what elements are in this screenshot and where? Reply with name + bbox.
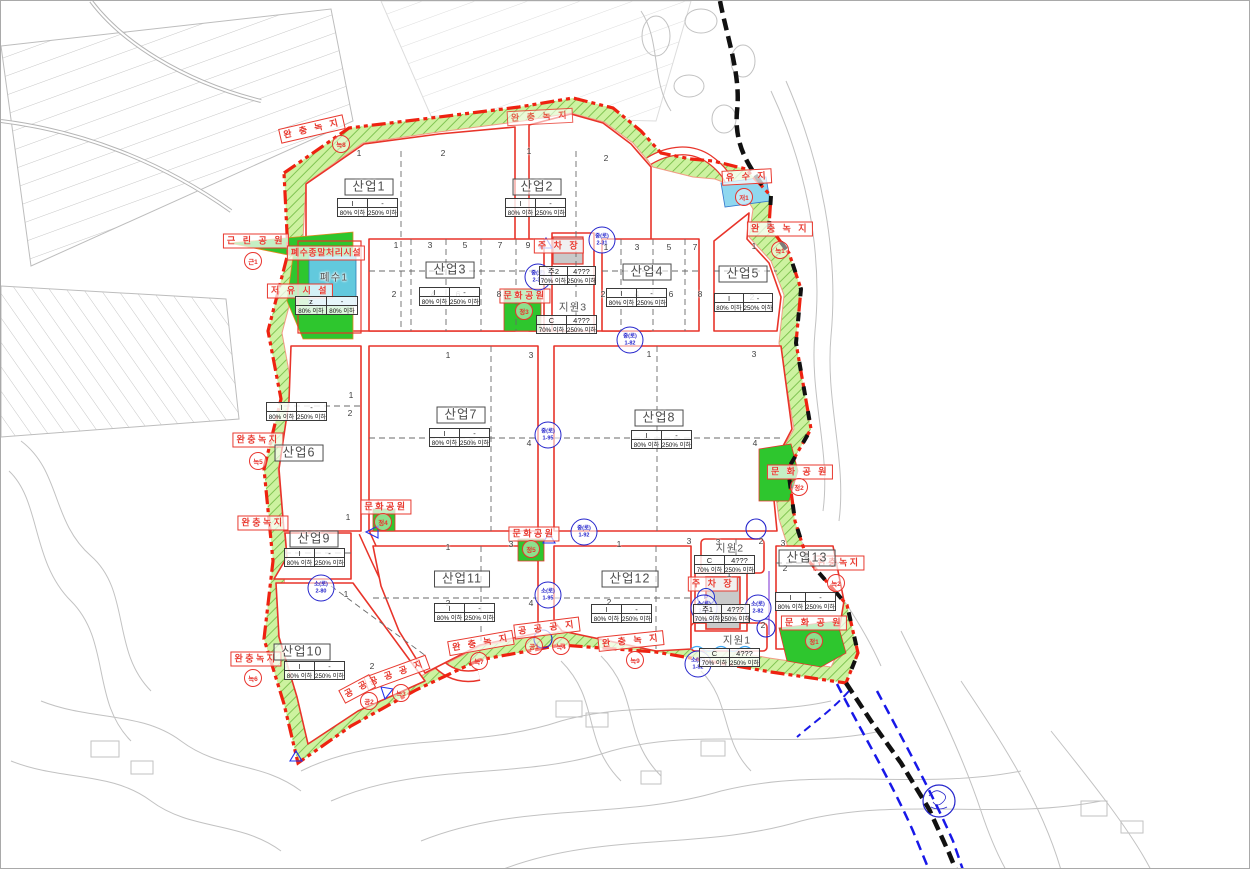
zone-label-munhwa-park-c: 문화공원 xyxy=(508,527,559,542)
lot-table-row: 70% 이하250% 이하 xyxy=(537,325,599,334)
zone-label-munhwa-park-b: 문화공원 xyxy=(360,500,411,515)
parcel-number-32: 4 xyxy=(753,438,758,448)
lot-table-cell: 70% 이하 xyxy=(699,657,730,667)
lot-table-cell: 250% 이하 xyxy=(449,296,480,306)
lot-table-row: 70% 이하250% 이하 xyxy=(694,614,752,623)
circle-marker-저1-3: 저1 xyxy=(735,188,753,206)
lot-table-sanup13: I-80% 이하250% 이하 xyxy=(776,593,838,611)
lot-table-cell: 70% 이하 xyxy=(694,564,725,574)
parcel-number-43: 3 xyxy=(781,538,786,548)
parcel-number-24: 2 xyxy=(348,408,353,418)
road-bubble-4: 소(로)1-95 xyxy=(535,582,562,609)
lot-name-sanup11: 산업11 xyxy=(434,571,490,588)
lot-table-sanup4: I-80% 이하250% 이하 xyxy=(607,289,669,307)
lot-table-cell: 250% 이하 xyxy=(459,437,490,447)
lot-table-sanup5: I-80% 이하250% 이하 xyxy=(715,294,775,312)
lot-table-sanup7: I-80% 이하250% 이하 xyxy=(430,429,492,447)
lot-table-row: 80% 이하250% 이하 xyxy=(506,208,568,217)
lot-table-cell: 250% 이하 xyxy=(721,613,750,623)
zone-label-munhwa-park-e: 문 화 공 원 xyxy=(781,616,847,631)
lot-table-cell: 80% 이하 xyxy=(631,439,662,449)
lot-table-cell: 80% 이하 xyxy=(266,411,297,421)
lot-name-jiwon1: 지원1 xyxy=(723,633,751,648)
lot-name-sanup5: 산업5 xyxy=(719,266,768,283)
lot-table-row: 80% 이하250% 이하 xyxy=(338,208,400,217)
zoning-map-canvas: 완 충 녹 지완 충 녹 지완 충 녹 지완충녹지완충녹지완충녹지완 충 녹 지… xyxy=(0,0,1250,869)
lot-table-row: 70% 이하250% 이하 xyxy=(540,276,598,285)
lot-table-row: 70% 이하250% 이하 xyxy=(695,565,757,574)
parcel-number-28: 4 xyxy=(527,438,532,448)
parcel-number-33: 1 xyxy=(346,512,351,522)
parcel-number-21: 1 xyxy=(752,241,757,251)
parcel-number-30: 3 xyxy=(752,349,757,359)
lot-table-row: 80% 이하250% 이하 xyxy=(435,613,497,622)
lot-table-cell: 250% 이하 xyxy=(805,601,836,611)
map-label-overlay: 완 충 녹 지완 충 녹 지완 충 녹 지완충녹지완충녹지완충녹지완 충 녹 지… xyxy=(1,1,1249,868)
parcel-number-14: 3 xyxy=(635,242,640,252)
road-class: 소(로) xyxy=(314,581,328,588)
lot-table-cell: 80% 이하 xyxy=(434,612,465,622)
lot-table-row: 80% 이하250% 이하 xyxy=(285,671,347,680)
parcel-number-25: 1 xyxy=(446,350,451,360)
parcel-number-2: 1 xyxy=(527,146,532,156)
zone-label-pyesu-facility: 폐수종말처리시설 xyxy=(287,246,365,261)
lot-table-sanup3: I-80% 이하250% 이하 xyxy=(420,288,482,306)
zone-label-geunrin-park: 근 린 공 원 xyxy=(223,234,289,249)
parcel-number-48: 2 xyxy=(761,620,766,630)
lot-table-jiwon2: C4???70% 이하250% 이하 xyxy=(695,556,757,574)
lot-table-ju1: 주14???70% 이하250% 이하 xyxy=(694,605,752,623)
parcel-number-34: 1 xyxy=(344,589,349,599)
circle-marker-정5-8: 정5 xyxy=(522,540,540,558)
road-number: 1-92 xyxy=(578,532,589,539)
parcel-number-46: 2 xyxy=(759,536,764,546)
lot-table-cell: 250% 이하 xyxy=(729,657,760,667)
lot-table-jiwon1: C4???70% 이하250% 이하 xyxy=(700,649,762,667)
lot-name-jiwon2: 지원2 xyxy=(716,541,744,556)
lot-table-row: 80% 이하250% 이하 xyxy=(607,298,669,307)
parcel-number-16: 7 xyxy=(693,242,698,252)
circle-marker-정1-10: 정1 xyxy=(805,632,823,650)
lot-name-pyesu1: 폐수1 xyxy=(320,270,348,285)
lot-table-sanup11: I-80% 이하250% 이하 xyxy=(435,604,497,622)
lot-table-cell: 250% 이하 xyxy=(464,612,495,622)
road-class: 중(로) xyxy=(577,525,591,532)
lot-table-sanup8: I-80% 이하250% 이하 xyxy=(632,431,694,449)
lot-table-cell: 250% 이하 xyxy=(743,302,773,312)
lot-name-jiwon3: 지원3 xyxy=(559,300,587,315)
lot-table-cell: 250% 이하 xyxy=(535,207,566,217)
lot-table-cell: 70% 이하 xyxy=(539,275,568,285)
lot-name-sanup8: 산업8 xyxy=(635,410,684,427)
zone-label-parking-a: 주 차 장 xyxy=(534,239,584,254)
lot-table-cell: 80% 이하 xyxy=(419,296,450,306)
parcel-number-40: 1 xyxy=(617,539,622,549)
parcel-number-1: 2 xyxy=(441,148,446,158)
lot-table-cell: 80% 이하 xyxy=(429,437,460,447)
road-bubble-0: 중(로)2-31 xyxy=(589,227,616,254)
lot-table-cell: 250% 이하 xyxy=(566,324,597,334)
circle-marker-녹5-5: 녹5 xyxy=(249,452,267,470)
circle-marker-녹3-13: 녹3 xyxy=(392,684,410,702)
lot-name-sanup1: 산업1 xyxy=(345,179,394,196)
parcel-number-35: 2 xyxy=(370,661,375,671)
lot-table-cell: 80% 이하 xyxy=(775,601,806,611)
lot-table-cell: 250% 이하 xyxy=(296,411,327,421)
lot-table-cell: 250% 이하 xyxy=(314,557,345,567)
parcel-number-8: 9 xyxy=(526,240,531,250)
road-class: 중(로) xyxy=(623,333,637,340)
zone-label-wanchung-2: 완 충 녹 지 xyxy=(507,108,574,126)
lot-table-cell: 250% 이하 xyxy=(314,670,345,680)
road-number: 2-80 xyxy=(315,588,326,595)
lot-table-cell: 250% 이하 xyxy=(567,275,596,285)
circle-marker-녹7-14: 녹7 xyxy=(470,652,488,670)
lot-name-sanup9: 산업9 xyxy=(290,531,339,548)
parcel-number-29: 1 xyxy=(647,349,652,359)
parcel-number-15: 5 xyxy=(667,242,672,252)
parcel-number-20: 8 xyxy=(698,289,703,299)
lot-table-sanup1: I-80% 이하250% 이하 xyxy=(338,199,400,217)
circle-marker-녹1-1: 녹1 xyxy=(771,241,789,259)
lot-table-row: 80% 이하250% 이하 xyxy=(715,303,775,312)
road-bubble-2: 중(로)1-95 xyxy=(535,422,562,449)
lot-name-sanup2: 산업2 xyxy=(513,179,562,196)
lot-table-sanup9: I-80% 이하250% 이하 xyxy=(285,549,347,567)
lot-table-cell: 80% 이하 xyxy=(337,207,368,217)
parcel-number-13: 1 xyxy=(604,242,609,252)
lot-name-sanup7: 산업7 xyxy=(437,407,486,424)
parcel-number-36: 1 xyxy=(446,542,451,552)
parcel-number-3: 2 xyxy=(604,153,609,163)
zone-label-wanchung-5: 완충녹지 xyxy=(237,516,288,531)
parcel-number-12: 8 xyxy=(497,289,502,299)
lot-table-row: 80% 이하250% 이하 xyxy=(285,558,347,567)
parcel-number-39: 4 xyxy=(529,598,534,608)
parcel-number-37: 3 xyxy=(509,539,514,549)
parcel-number-4: 1 xyxy=(394,240,399,250)
lot-table-row: 70% 이하250% 이하 xyxy=(700,658,762,667)
lot-table-row: 80% 이하250% 이하 xyxy=(420,297,482,306)
lot-table-cell: 80% 이하 xyxy=(714,302,744,312)
lot-table-row: 80% 이하80% 이하 xyxy=(296,306,360,315)
circle-marker-녹2-9: 녹2 xyxy=(827,574,845,592)
lot-table-ju2: 주24???70% 이하250% 이하 xyxy=(540,267,598,285)
lot-table-sanup6: I-80% 이하250% 이하 xyxy=(267,403,329,421)
lot-table-row: 80% 이하250% 이하 xyxy=(430,438,492,447)
lot-name-sanup12: 산업12 xyxy=(602,571,659,588)
circle-marker-녹9-17: 녹9 xyxy=(626,651,644,669)
lot-name-sanup4: 산업4 xyxy=(623,264,672,281)
road-bubble-3: 중(로)1-92 xyxy=(571,519,598,546)
parcel-number-19: 6 xyxy=(669,289,674,299)
road-number: 1-95 xyxy=(542,595,553,602)
zone-label-yusuji: 유 수 지 xyxy=(721,168,772,186)
circle-marker-근1-2: 근1 xyxy=(244,252,262,270)
lot-name-sanup13: 산업13 xyxy=(779,550,836,567)
road-class: 중(로) xyxy=(595,233,609,240)
lot-table-cell: 80% 이하 xyxy=(284,670,315,680)
parcel-number-5: 3 xyxy=(428,240,433,250)
zone-label-wanchung-8: 완 충 녹 지 xyxy=(597,630,664,652)
zone-label-wanchung-3: 완 충 녹 지 xyxy=(747,222,813,237)
circle-marker-녹8-0: 녹8 xyxy=(332,135,350,153)
lot-table-cell: 80% 이하 xyxy=(591,613,622,623)
parcel-number-6: 5 xyxy=(463,240,468,250)
lot-table-cell: 70% 이하 xyxy=(693,613,722,623)
lot-table-row: 80% 이하250% 이하 xyxy=(776,602,838,611)
circle-marker-정2-7: 정2 xyxy=(790,478,808,496)
parcel-number-23: 1 xyxy=(349,390,354,400)
lot-table-cell: 250% 이하 xyxy=(621,613,652,623)
lot-table-sanup12: I-80% 이하250% 이하 xyxy=(592,605,654,623)
road-number: 2-82 xyxy=(752,608,763,615)
circle-marker-녹6-11: 녹6 xyxy=(244,669,262,687)
lot-name-sanup10: 산업10 xyxy=(274,644,331,661)
road-number: 1-95 xyxy=(542,435,553,442)
lot-table-cell: 80% 이하 xyxy=(284,557,315,567)
lot-table-row: 80% 이하250% 이하 xyxy=(632,440,694,449)
lot-table-cell: 80% 이하 xyxy=(606,297,637,307)
road-class: 소(로) xyxy=(751,601,765,608)
lot-table-cell: 250% 이하 xyxy=(724,564,755,574)
lot-table-row: 80% 이하250% 이하 xyxy=(592,614,654,623)
lot-table-cell: 80% 이하 xyxy=(326,305,358,315)
lot-name-sanup3: 산업3 xyxy=(426,262,475,279)
road-class: 중(로) xyxy=(541,428,555,435)
parcel-number-9: 2 xyxy=(392,289,397,299)
lot-table-row: 80% 이하250% 이하 xyxy=(267,412,329,421)
circle-marker-공1-15: 공1 xyxy=(525,637,543,655)
parcel-number-26: 3 xyxy=(529,350,534,360)
parcel-number-7: 7 xyxy=(498,240,503,250)
road-bubble-1: 중(로)1-82 xyxy=(617,327,644,354)
lot-table-cell: 80% 이하 xyxy=(505,207,536,217)
lot-table-jiwon3: C4???70% 이하250% 이하 xyxy=(537,316,599,334)
lot-table-sanup10: I-80% 이하250% 이하 xyxy=(285,662,347,680)
circle-marker-정4-6: 정4 xyxy=(374,513,392,531)
parcel-number-17: 2 xyxy=(601,289,606,299)
parcel-number-41: 3 xyxy=(687,536,692,546)
lot-table-pyesu1: z-80% 이하80% 이하 xyxy=(296,297,360,315)
lot-name-sanup6: 산업6 xyxy=(275,445,324,462)
road-number: 1-82 xyxy=(624,340,635,347)
lot-table-cell: 250% 이하 xyxy=(636,297,667,307)
lot-table-cell: 70% 이하 xyxy=(536,324,567,334)
circle-marker-공2-12: 공2 xyxy=(360,692,378,710)
lot-table-cell: 250% 이하 xyxy=(367,207,398,217)
lot-table-cell: 80% 이하 xyxy=(295,305,327,315)
circle-marker-녹4-16: 녹4 xyxy=(552,637,570,655)
lot-table-sanup2: I-80% 이하250% 이하 xyxy=(506,199,568,217)
zone-label-gonggong-a: 공 공 공 지 xyxy=(513,617,580,640)
parcel-number-0: 1 xyxy=(357,148,362,158)
road-class: 소(로) xyxy=(541,588,555,595)
road-bubble-5: 소(로)2-80 xyxy=(308,575,335,602)
circle-marker-정3-4: 정3 xyxy=(515,302,533,320)
lot-table-cell: 250% 이하 xyxy=(661,439,692,449)
